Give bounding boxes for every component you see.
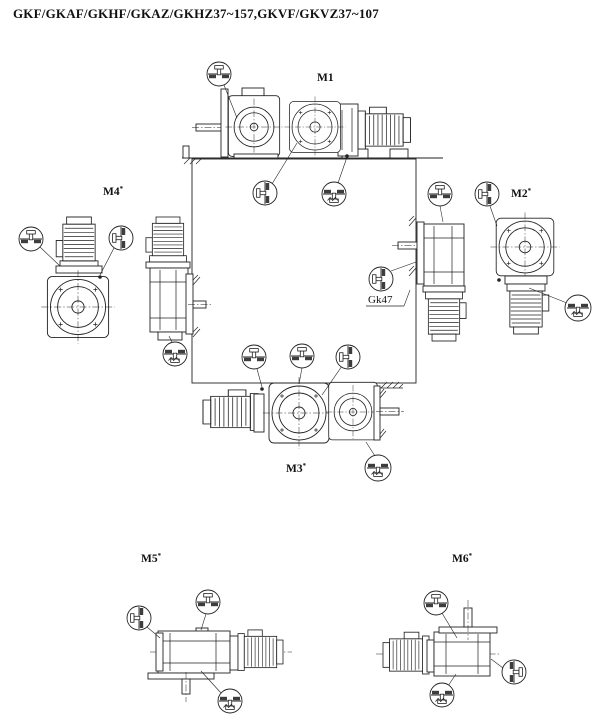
label-m5: M5* [141,552,162,565]
m4-right-unit [146,217,212,340]
m6-drain-callout [430,674,456,707]
m2-right-unit [490,212,559,334]
label-m3: M3* [286,462,307,475]
m4-drain-callout [163,336,187,366]
m2-left-unit [392,216,466,341]
m6-side-plug-callout [491,659,526,684]
m3-left-unit [203,377,335,449]
m3-drain-callout [365,442,391,481]
mounting-square [182,158,443,383]
label-m4: M4* [103,185,124,198]
gk47-callout: Gk47 [366,262,416,306]
diagram-title: GKF/GKAF/GKHF/GKAZ/GKHZ37~157,GKVF/GKVZ3… [13,6,379,22]
m5-unit [148,628,292,702]
label-m6: M6* [452,552,473,565]
m1-drain-callout [322,157,347,206]
m2-side-plug-callout [475,182,499,226]
label-m1: M1 [317,72,334,84]
m3-breather-callout-2 [290,344,314,384]
m4-breather-callout [19,227,60,266]
label-m2: M2* [511,187,532,200]
m4-left-unit [41,217,114,344]
m1-left-unit [183,88,283,164]
m3-right-unit [326,382,404,440]
m3-breather-callout-1 [242,345,266,387]
m4-side-plug-callout [100,226,133,275]
m5-side-plug-callout [127,606,160,638]
mounting-position-page: GKF/GKAF/GKHF/GKAZ/GKHZ37~157,GKVF/GKVZ3… [0,0,600,724]
gk47-label: Gk47 [368,294,393,306]
mounting-diagram: M1 [0,0,600,724]
m2-breather-callout [428,182,452,222]
m5-breather-callout [196,590,220,630]
m1-right-unit [284,96,410,158]
